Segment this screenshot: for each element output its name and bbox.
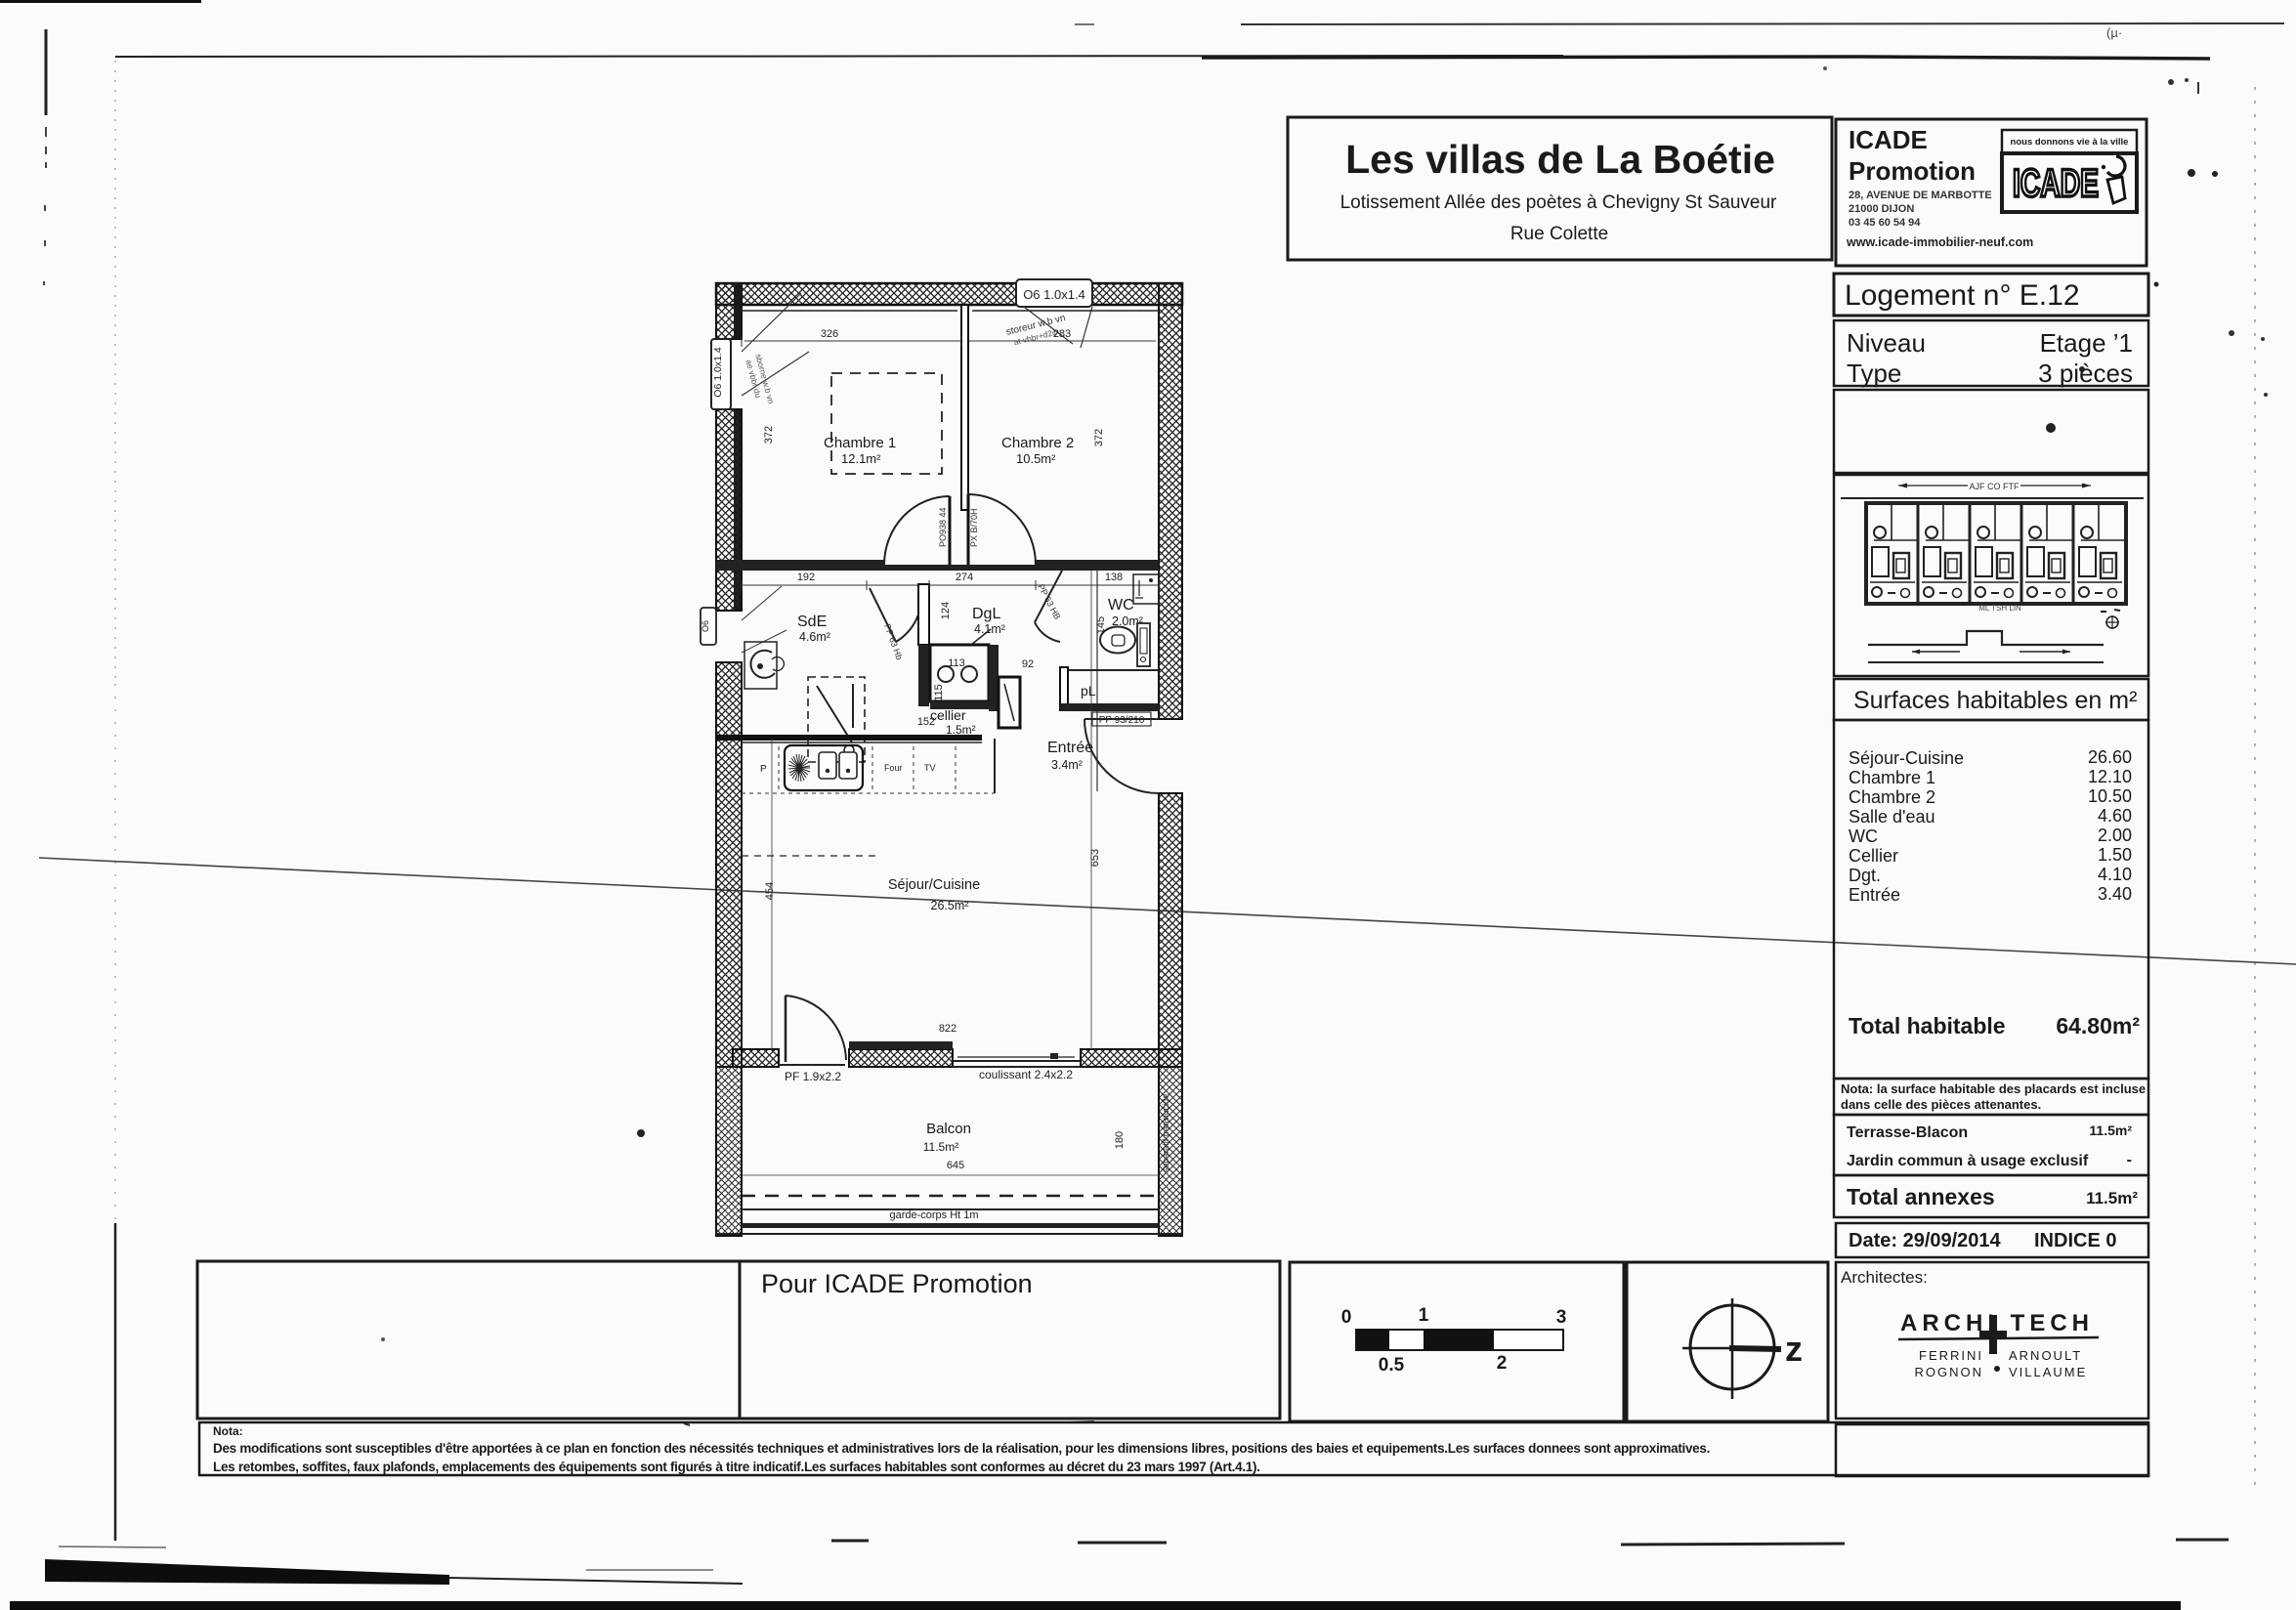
svg-text:Date: 29/09/2014: Date: 29/09/2014 (1849, 1230, 2002, 1251)
svg-text:180: 180 (1114, 1131, 1126, 1149)
svg-text:454: 454 (764, 882, 776, 900)
svg-text:Four: Four (884, 763, 903, 773)
svg-text:28, AVENUE DE MARBOTTE: 28, AVENUE DE MARBOTTE (1849, 190, 1992, 201)
svg-text:283: 283 (1053, 328, 1071, 340)
svg-text:Les villas de La Boétie: Les villas de La Boétie (1345, 137, 1775, 182)
svg-text:VILLAUME: VILLAUME (2009, 1365, 2087, 1379)
svg-text:pL: pL (1081, 683, 1096, 699)
svg-text:PO938 44: PO938 44 (938, 507, 948, 547)
svg-text:PP 93/210: PP 93/210 (1099, 715, 1145, 726)
svg-text:nous donnons vie à la ville: nous donnons vie à la ville (2011, 137, 2129, 148)
svg-text:274: 274 (956, 572, 973, 583)
svg-text:Cellier: Cellier (1849, 846, 1898, 866)
svg-text:Entrée: Entrée (1849, 885, 1900, 905)
svg-text:124: 124 (940, 602, 952, 619)
svg-text:10.50: 10.50 (2088, 786, 2132, 806)
svg-text:Chambre 2: Chambre 2 (1849, 787, 1935, 807)
svg-text:26.60: 26.60 (2088, 747, 2132, 767)
svg-text:Jardin commun à usage exclusif: Jardin commun à usage exclusif (1847, 1153, 2089, 1169)
svg-text:12.1m²: 12.1m² (841, 451, 881, 466)
svg-text:Logement n° E.12: Logement n° E.12 (1845, 279, 2080, 312)
svg-text:Chambre 1: Chambre 1 (1849, 768, 1935, 787)
svg-text:Type: Type (1847, 359, 1901, 388)
svg-text:Nota: la surface habitable des: Nota: la surface habitable des placards … (1841, 1081, 2146, 1096)
svg-text:192: 192 (797, 572, 815, 583)
svg-text:Etage ’1: Etage ’1 (2040, 328, 2133, 358)
svg-text:O6: O6 (701, 620, 710, 632)
svg-text:64.80m²: 64.80m² (2056, 1013, 2140, 1038)
svg-text:92: 92 (1022, 658, 1034, 670)
svg-text:Lotissement Allée des poètes à: Lotissement Allée des poètes à Chevigny … (1340, 192, 1777, 213)
svg-text:326: 326 (821, 328, 838, 340)
svg-text:(µ·: (µ· (2106, 25, 2122, 40)
svg-text:2: 2 (1497, 1353, 1508, 1374)
svg-text:PX B/70H: PX B/70H (969, 508, 979, 547)
svg-text:garde-corps Ht 1m: garde-corps Ht 1m (889, 1209, 978, 1221)
svg-text:Rue Colette: Rue Colette (1510, 224, 1608, 244)
svg-text:FERRINI: FERRINI (1919, 1348, 1983, 1363)
svg-text:4.10: 4.10 (2098, 865, 2132, 884)
svg-text:3.40: 3.40 (2098, 884, 2132, 904)
svg-text:1.5m²: 1.5m² (946, 723, 976, 737)
svg-text:Total annexes: Total annexes (1847, 1184, 1995, 1209)
svg-text:Chambre 2: Chambre 2 (1001, 435, 1074, 451)
svg-text:PF 1.9x2.2: PF 1.9x2.2 (785, 1070, 841, 1083)
svg-text:P: P (760, 764, 767, 775)
svg-text:ARNOULT: ARNOULT (2009, 1348, 2082, 1363)
svg-text:cellier: cellier (930, 707, 966, 723)
svg-text:Balcon: Balcon (926, 1121, 971, 1137)
svg-text:INDICE 0: INDICE 0 (2034, 1230, 2116, 1251)
svg-text:Promotion: Promotion (1849, 156, 1976, 186)
svg-text:ML TSH LIN: ML TSH LIN (1978, 604, 2021, 613)
svg-text:DgL: DgL (972, 606, 1000, 622)
svg-text:2.00: 2.00 (2098, 826, 2132, 845)
svg-text:ICADE: ICADE (1849, 125, 1928, 154)
svg-text:Surfaces habitables en m²: Surfaces habitables en m² (1853, 687, 2137, 714)
svg-text:WC: WC (1108, 597, 1134, 614)
svg-text:Séjour/Cuisine: Séjour/Cuisine (888, 877, 980, 893)
svg-text:Terrasse-Blacon: Terrasse-Blacon (1847, 1124, 1968, 1141)
svg-text:ICADE: ICADE (2013, 162, 2099, 205)
svg-text:3.4m²: 3.4m² (1051, 758, 1083, 772)
svg-text:0: 0 (1341, 1307, 1352, 1328)
svg-text:4.60: 4.60 (2098, 806, 2132, 826)
svg-text:3 pièces: 3 pièces (2038, 359, 2133, 388)
svg-text:03 45 60 54 94: 03 45 60 54 94 (1849, 217, 1921, 229)
svg-text:Architectes:: Architectes: (1841, 1268, 1928, 1287)
svg-text:372: 372 (1093, 429, 1105, 446)
svg-text:dans celle des pièces attenant: dans celle des pièces attenantes. (1841, 1097, 2041, 1112)
svg-text:Dgt.: Dgt. (1849, 866, 1881, 885)
svg-text:O6 1.0x1.4: O6 1.0x1.4 (712, 347, 724, 398)
svg-text:-: - (2127, 1152, 2132, 1168)
svg-text:Les retombes, soffites, faux p: Les retombes, soffites, faux plafonds, e… (213, 1460, 1260, 1474)
svg-text:26.5m²: 26.5m² (931, 899, 969, 912)
svg-text:Des modifications sont suscept: Des modifications sont susceptibles d'êt… (213, 1441, 1710, 1456)
svg-text:separatif translucide: separatif translucide (1161, 1094, 1170, 1173)
svg-text:372: 372 (763, 426, 775, 444)
svg-text:3: 3 (1556, 1307, 1567, 1328)
svg-text:115: 115 (933, 684, 945, 701)
svg-text:O6 1.0x1.4: O6 1.0x1.4 (1023, 287, 1085, 302)
svg-text:z: z (1785, 1329, 1803, 1369)
svg-text:4.6m²: 4.6m² (799, 630, 830, 644)
svg-text:Total habitable: Total habitable (1849, 1013, 2006, 1038)
svg-text:coulissant 2.4x2.2: coulissant 2.4x2.2 (979, 1068, 1073, 1081)
svg-text:Niveau: Niveau (1847, 328, 1926, 358)
svg-text:822: 822 (939, 1023, 957, 1035)
svg-text:Nota:: Nota: (213, 1424, 243, 1438)
svg-text:WC: WC (1849, 826, 1878, 846)
svg-text:AJF CO FTF: AJF CO FTF (1970, 482, 2020, 491)
svg-text:138: 138 (1105, 572, 1123, 583)
svg-text:SdE: SdE (797, 614, 827, 630)
svg-text:10.5m²: 10.5m² (1016, 451, 1056, 466)
svg-text:1.50: 1.50 (2098, 845, 2132, 865)
svg-text:Entrée: Entrée (1047, 740, 1093, 756)
svg-text:12.10: 12.10 (2088, 767, 2132, 786)
svg-text:Pour ICADE Promotion: Pour ICADE Promotion (761, 1269, 1033, 1298)
svg-text:0.5: 0.5 (1379, 1355, 1405, 1376)
svg-text:Séjour-Cuisine: Séjour-Cuisine (1849, 748, 1964, 768)
svg-text:21000 DIJON: 21000 DIJON (1849, 203, 1914, 215)
svg-text:Chambre 1: Chambre 1 (824, 435, 896, 451)
svg-text:ROGNON: ROGNON (1915, 1365, 1984, 1379)
svg-text:1: 1 (1419, 1305, 1429, 1326)
svg-text:11.5m²: 11.5m² (2086, 1189, 2138, 1207)
svg-text:11.5m²: 11.5m² (923, 1140, 958, 1154)
svg-text:645: 645 (947, 1160, 964, 1171)
svg-text:www.icade-immobilier-neuf.com: www.icade-immobilier-neuf.com (1846, 235, 2033, 249)
svg-text:11.5m²: 11.5m² (2089, 1123, 2132, 1138)
svg-text:Salle d'eau: Salle d'eau (1849, 807, 1935, 826)
svg-text:TV: TV (924, 763, 936, 773)
